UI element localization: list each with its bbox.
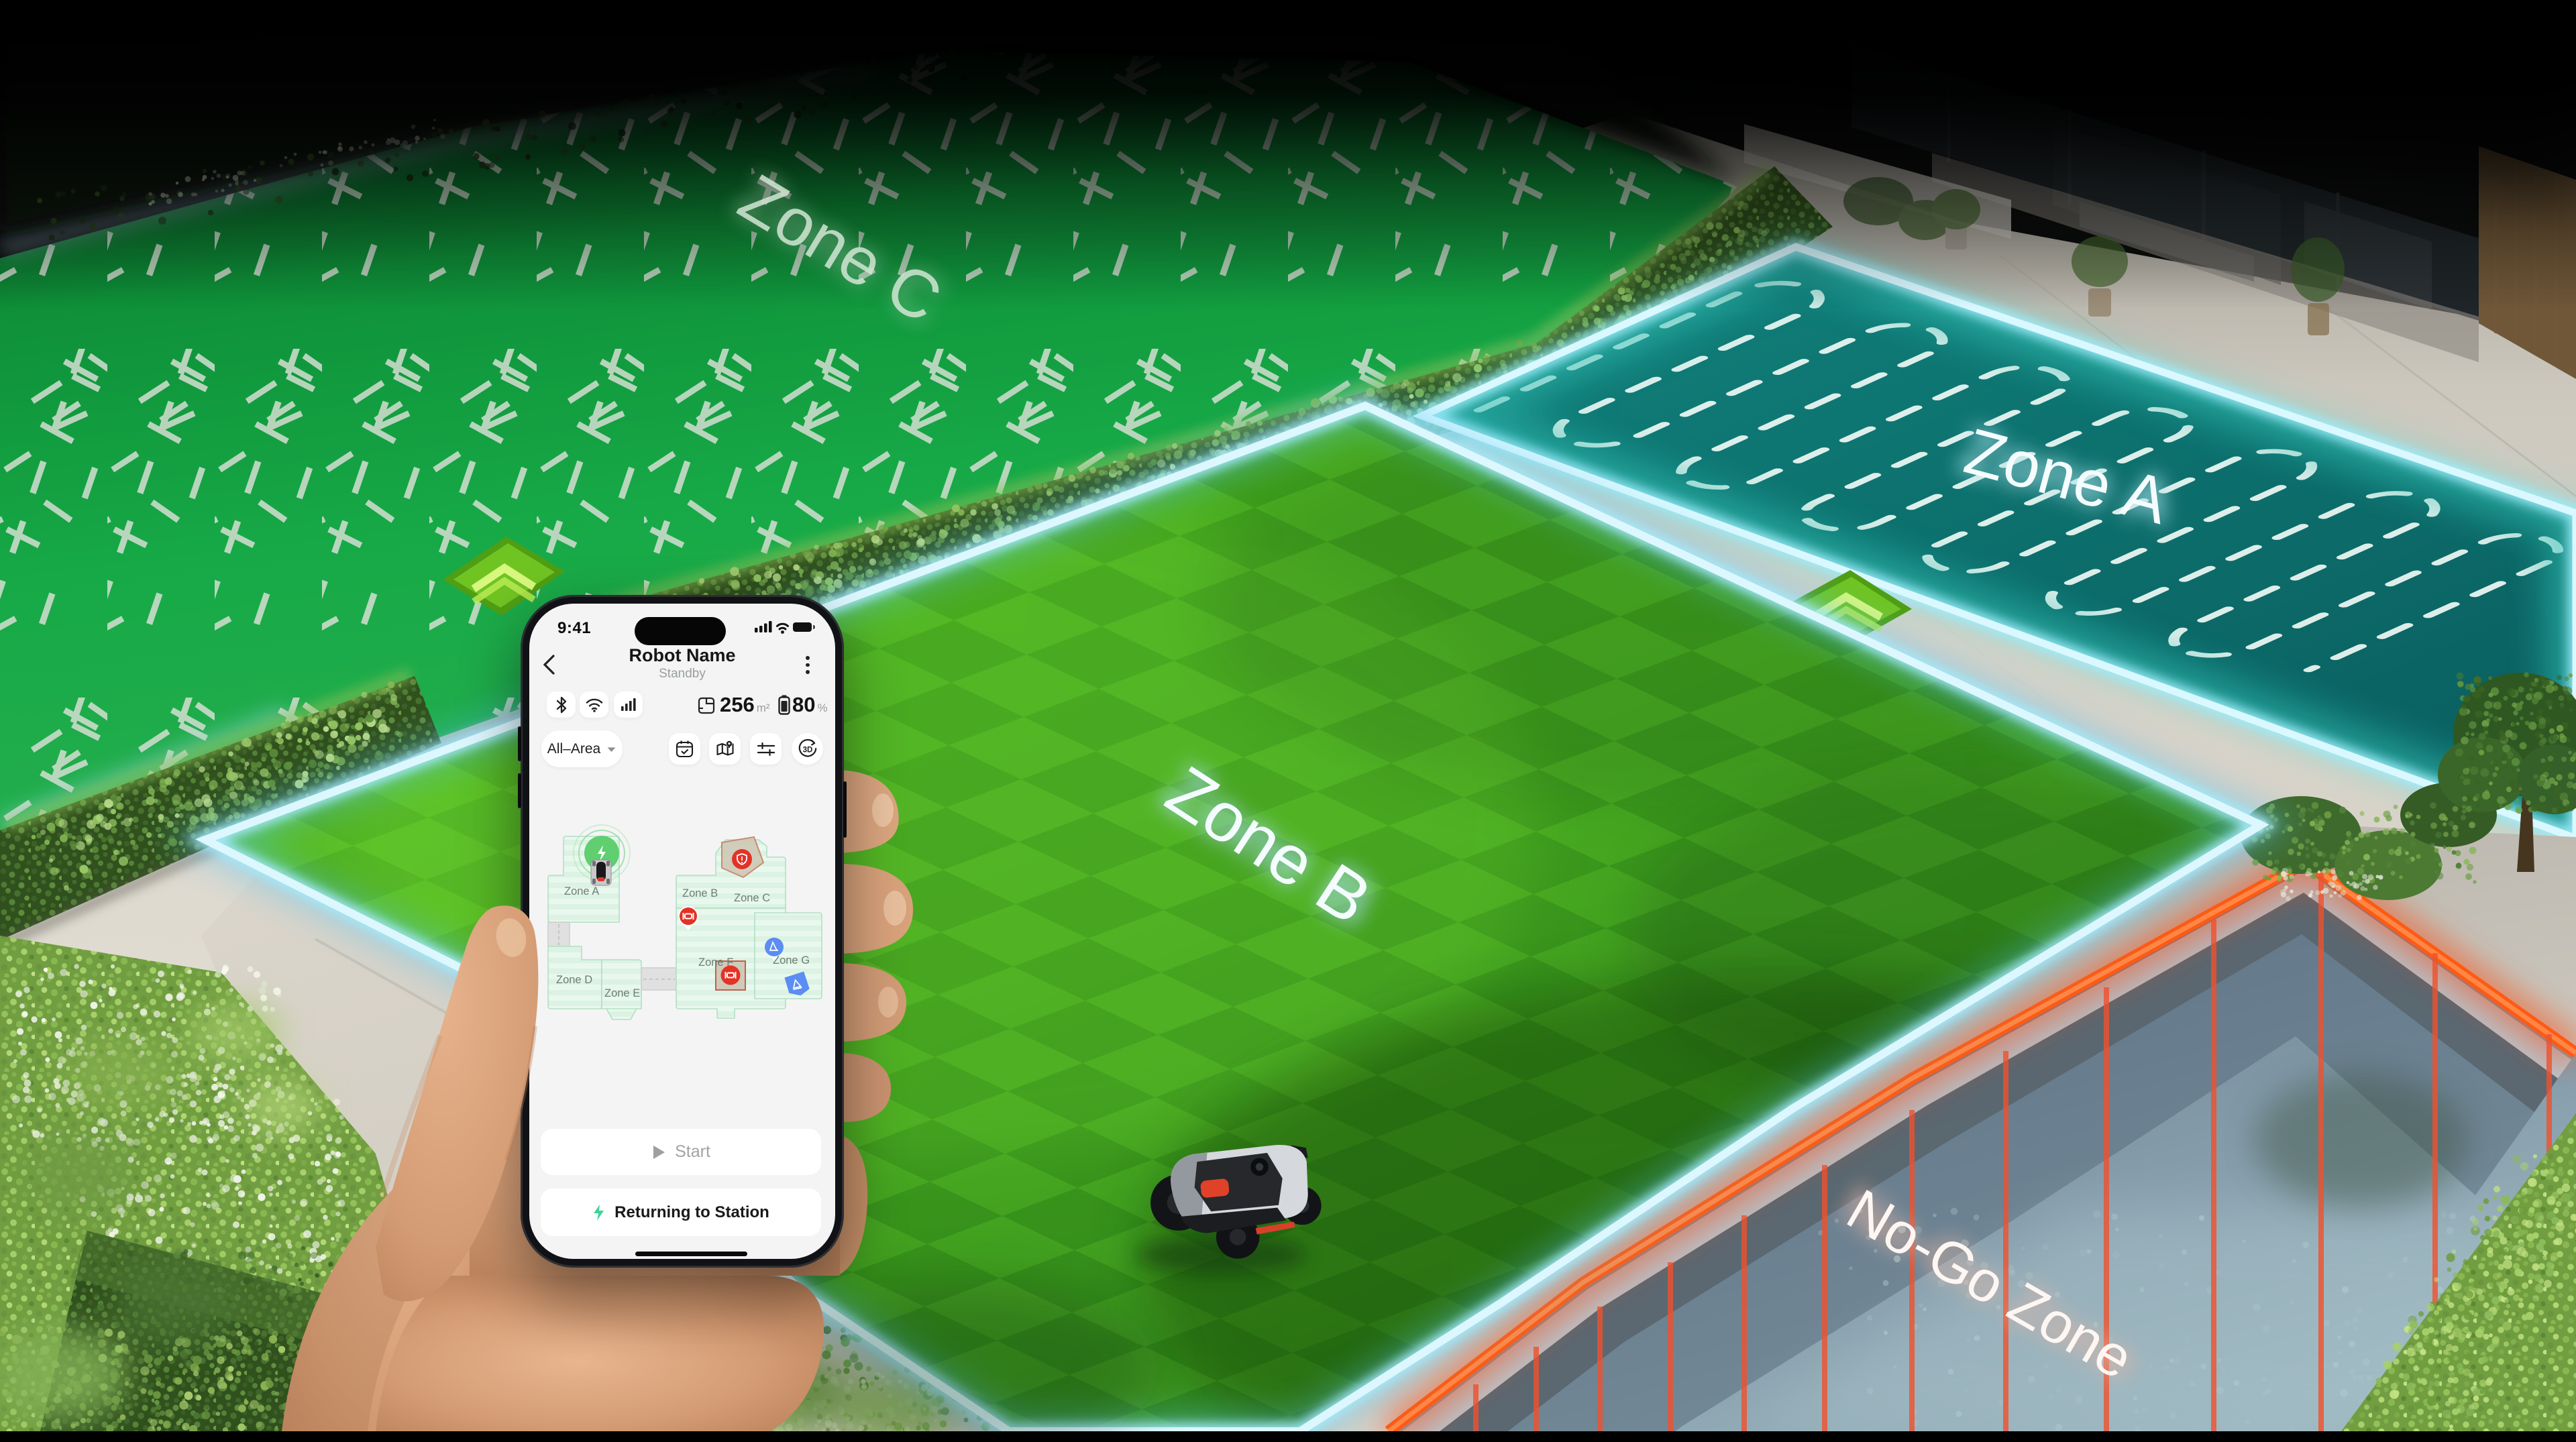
- svg-text:Zone B: Zone B: [682, 887, 718, 899]
- svg-text:Zone C: Zone C: [734, 892, 770, 904]
- svg-text:Zone G: Zone G: [773, 954, 810, 966]
